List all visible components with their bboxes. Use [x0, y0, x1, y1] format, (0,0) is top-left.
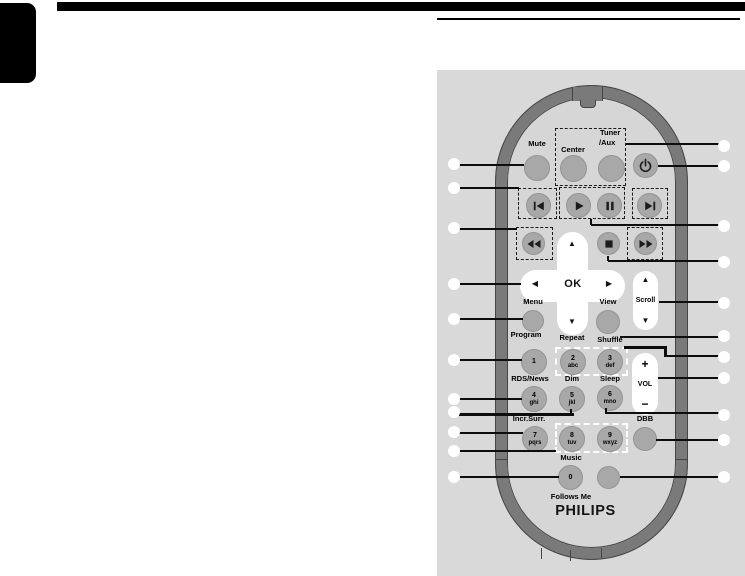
callout-marker	[718, 351, 730, 363]
callout-line	[459, 318, 523, 320]
view-label: View	[588, 297, 628, 306]
top-rule	[57, 2, 745, 11]
callout-line-thick	[624, 346, 667, 349]
key-3-button: 3 def	[597, 349, 623, 375]
callout-line	[656, 439, 719, 441]
key-letters: mno	[604, 399, 617, 406]
follows-me-label: Follows Me	[541, 492, 601, 501]
key-letters: jkl	[569, 400, 576, 407]
callout-line	[620, 336, 719, 338]
callout-marker	[448, 354, 460, 366]
key-digit: 2	[571, 355, 575, 363]
callout-marker	[718, 160, 730, 172]
key-letters: wxyz	[603, 440, 617, 447]
rewind-button	[522, 232, 545, 255]
callout-line	[459, 398, 522, 400]
callout-marker	[448, 313, 460, 325]
skip-forward-icon	[643, 200, 657, 212]
remote-ir-window	[572, 87, 603, 101]
key-1-button: 1	[521, 349, 547, 375]
callout-marker	[718, 220, 730, 232]
key-8-button: 8 tuv	[559, 426, 585, 452]
callout-marker	[718, 372, 730, 384]
callout-marker	[448, 426, 460, 438]
key-digit: 4	[532, 392, 536, 400]
callout-line	[666, 355, 719, 357]
key-digit: 7	[533, 432, 537, 440]
callout-line	[626, 143, 719, 145]
callout-line	[459, 283, 521, 285]
key-letters: pqrs	[528, 440, 541, 447]
skip-back-icon	[532, 200, 546, 212]
callout-line	[608, 260, 719, 262]
key-letters: abc	[568, 363, 578, 370]
key-9-button: 9 wxyz	[597, 426, 623, 452]
callout-marker	[718, 471, 730, 483]
scroll-up-icon: ▲	[642, 276, 650, 284]
play-icon	[573, 200, 585, 212]
dbb-button	[633, 427, 657, 451]
sleep-label: Sleep	[588, 374, 632, 383]
view-button	[596, 310, 620, 334]
scroll-control: ▲ Scroll ▼	[633, 271, 658, 330]
stop-button	[597, 232, 620, 255]
tuner-aux-label-line1: Tuner	[600, 128, 634, 137]
pause-icon	[604, 200, 616, 212]
nav-down-icon: ▼	[566, 318, 578, 326]
nav-up-icon: ▲	[566, 240, 578, 248]
menu-label: Menu	[513, 297, 553, 306]
menu-button	[522, 310, 544, 332]
key-digit: 5	[570, 392, 574, 400]
manual-page: Mute Center Tuner /Aux ▲ ▼	[0, 0, 745, 576]
callout-line	[459, 432, 523, 434]
volume-down-label: −	[641, 398, 648, 410]
pause-button	[597, 193, 622, 218]
volume-label: VOL	[638, 381, 652, 388]
dbb-label: DBB	[628, 414, 662, 423]
key-2-button: 2 abc	[560, 349, 586, 375]
callout-marker	[448, 393, 460, 405]
callout-marker	[448, 278, 460, 290]
key-7-button: 7 pqrs	[522, 426, 548, 452]
callout-marker	[718, 297, 730, 309]
chapter-tab-marker	[0, 3, 36, 83]
key-letters: def	[606, 363, 615, 370]
callout-line	[459, 164, 524, 166]
key-digit: 0	[569, 474, 573, 482]
volume-control: + VOL −	[632, 353, 658, 415]
callout-marker	[448, 222, 460, 234]
ring-divider	[570, 550, 571, 561]
callout-line	[620, 476, 719, 478]
ring-divider	[676, 459, 687, 460]
callout-marker	[448, 445, 460, 457]
callout-marker	[718, 256, 730, 268]
callout-line	[591, 224, 719, 226]
callout-marker	[448, 471, 460, 483]
program-label: Program	[504, 330, 548, 339]
ok-button: OK	[561, 278, 585, 290]
nav-left-icon: ◀	[529, 280, 541, 288]
center-label: Center	[553, 145, 593, 154]
scroll-down-icon: ▼	[642, 317, 650, 325]
callout-line	[459, 228, 517, 230]
key-digit: 8	[570, 432, 574, 440]
key-4-button: 4 ghi	[521, 386, 547, 412]
ring-divider	[541, 548, 542, 559]
forward-button	[634, 232, 657, 255]
power-icon	[637, 157, 654, 174]
rewind-icon	[527, 239, 541, 249]
mute-button	[524, 155, 550, 181]
ring-divider	[601, 548, 602, 559]
philips-logo: PHILIPS	[543, 503, 628, 519]
tuner-aux-button	[598, 155, 625, 182]
scroll-label: Scroll	[636, 297, 655, 304]
key-letters: tuv	[568, 440, 577, 447]
ring-divider	[496, 459, 507, 460]
callout-marker	[448, 182, 460, 194]
stop-icon	[604, 239, 614, 249]
callout-line	[459, 476, 559, 478]
play-button	[566, 193, 591, 218]
key-digit: 1	[532, 358, 536, 366]
fast-forward-icon	[639, 239, 653, 249]
next-button	[637, 193, 662, 218]
music-label: Music	[549, 453, 593, 462]
mute-label: Mute	[517, 139, 557, 148]
callout-line	[658, 377, 719, 379]
callout-marker	[448, 158, 460, 170]
callout-marker	[718, 434, 730, 446]
key-5-button: 5 jkl	[559, 386, 585, 412]
callout-line	[459, 187, 519, 189]
key-digit: 3	[608, 355, 612, 363]
callout-marker	[448, 406, 460, 418]
remote-ir-window-bump	[580, 100, 596, 108]
callout-line	[459, 359, 522, 361]
callout-line	[459, 450, 556, 452]
nav-right-icon: ▶	[603, 280, 615, 288]
callout-line	[659, 301, 719, 303]
key-digit: 6	[608, 391, 612, 399]
follows-me-button	[597, 466, 620, 489]
rds-news-label: RDS/News	[504, 374, 556, 383]
callout-line-thick	[459, 413, 574, 416]
callout-line	[570, 409, 572, 415]
center-button	[560, 155, 587, 182]
callout-line	[606, 412, 719, 414]
callout-marker	[718, 330, 730, 342]
key-letters: ghi	[530, 400, 539, 407]
power-button	[633, 153, 658, 178]
key-6-button: 6 mno	[597, 385, 623, 411]
callout-marker	[718, 409, 730, 421]
callout-marker	[718, 140, 730, 152]
header-rule	[437, 18, 740, 20]
key-0-button: 0	[558, 465, 583, 490]
previous-button	[526, 193, 551, 218]
key-digit: 9	[608, 432, 612, 440]
callout-line	[658, 165, 719, 167]
volume-up-label: +	[641, 358, 648, 370]
